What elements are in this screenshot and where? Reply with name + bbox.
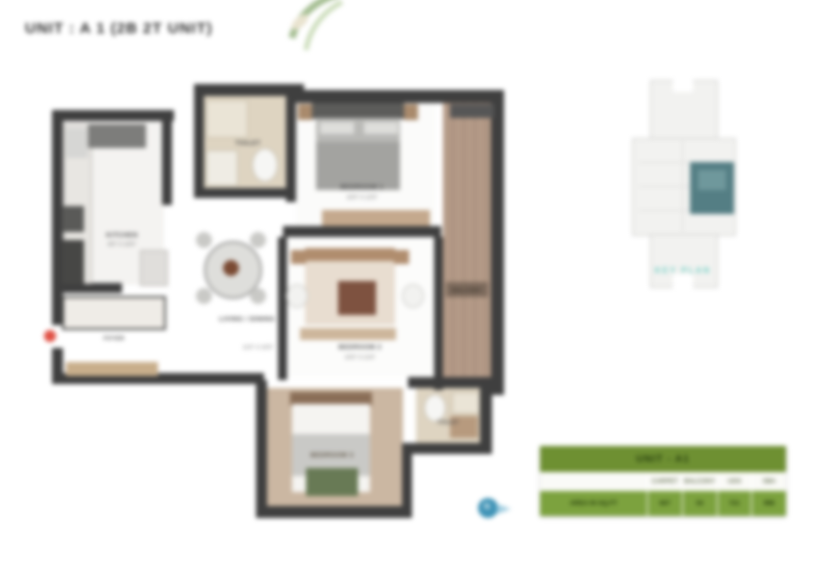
north-compass-icon: N bbox=[478, 496, 518, 522]
bedroom2-label: BEDROOM 2 bbox=[318, 344, 402, 351]
shower-area bbox=[206, 100, 248, 138]
area-table-column-row: CARPET BALCONY UDS SBA bbox=[540, 472, 786, 491]
bed1-pillow bbox=[320, 122, 354, 134]
bed2-side-table bbox=[394, 250, 409, 264]
key-plan bbox=[628, 78, 738, 290]
wall bbox=[286, 90, 296, 202]
wall bbox=[256, 380, 267, 518]
bedroom3-label: BEDROOM 3 bbox=[292, 452, 372, 459]
area-column: CARPET bbox=[647, 472, 682, 491]
bed1-blanket bbox=[316, 142, 400, 190]
kitchen-sink bbox=[66, 128, 88, 158]
foyer-label: FOYER bbox=[90, 336, 138, 342]
wall bbox=[480, 380, 492, 450]
bedroom2-chair bbox=[286, 284, 308, 308]
keyplan-notch bbox=[673, 78, 693, 92]
wall bbox=[283, 226, 441, 237]
page-title: UNIT : A 1 (2B 2T UNIT) bbox=[25, 20, 213, 37]
area-table-blank-cell bbox=[540, 472, 647, 491]
toilet1-label: TOILET bbox=[218, 140, 278, 147]
bed1-headboard bbox=[312, 103, 404, 119]
bed2-side-table bbox=[291, 250, 306, 264]
keyplan-notch bbox=[673, 274, 693, 288]
vanity-basin bbox=[206, 150, 238, 186]
wc-fixture-2 bbox=[424, 394, 446, 422]
balcony-floor bbox=[443, 102, 491, 390]
kitchen-label: KITCHEN bbox=[92, 232, 152, 239]
foyer-cabinet bbox=[62, 296, 166, 330]
wall bbox=[491, 90, 504, 395]
bed1-pillow bbox=[364, 122, 398, 134]
compass-letter: N bbox=[484, 502, 490, 511]
area-table-header: UNIT - A1 bbox=[540, 446, 786, 472]
wall bbox=[402, 443, 492, 454]
area-table: UNIT - A1 CARPET BALCONY UDS SBA AREA IN… bbox=[540, 446, 786, 516]
entry-mat bbox=[66, 362, 158, 376]
wall bbox=[162, 110, 172, 205]
bed2-rug bbox=[300, 328, 396, 340]
dining-chair bbox=[250, 288, 266, 304]
living-dining-label: LIVING / DINING bbox=[200, 316, 294, 323]
main-entry-marker bbox=[44, 330, 56, 342]
keyplan-line bbox=[682, 140, 683, 232]
wall bbox=[296, 90, 504, 103]
bed3-bench bbox=[306, 468, 358, 496]
toilet2-label: TOILET bbox=[420, 420, 476, 426]
area-value: 721 bbox=[717, 491, 752, 516]
bed2-runner bbox=[338, 281, 376, 315]
bedroom2-chair bbox=[402, 284, 424, 308]
area-column: UDS bbox=[717, 472, 752, 491]
area-table-value-row: AREA IN SQ.FT 667 54 721 998 bbox=[540, 491, 786, 516]
area-column: BALCONY bbox=[682, 472, 717, 491]
bed1-rug bbox=[322, 210, 430, 226]
kitchen-cabinet-dark bbox=[62, 206, 84, 232]
wall bbox=[194, 188, 296, 198]
area-value: 667 bbox=[647, 491, 682, 516]
wc-fixture bbox=[252, 148, 278, 182]
balcony-label: BALCONY bbox=[444, 288, 490, 294]
bedroom2-dims: 10'0" X 11'6" bbox=[318, 355, 402, 361]
kitchen-tall-unit bbox=[62, 240, 84, 284]
area-value: 54 bbox=[682, 491, 717, 516]
living-dining-dims: 11'6" X 16'0" bbox=[228, 345, 288, 351]
balcony-door-wall bbox=[450, 104, 494, 118]
compass-pointer bbox=[497, 504, 511, 514]
wall bbox=[278, 237, 287, 380]
area-column: SBA bbox=[751, 472, 786, 491]
wall bbox=[402, 443, 412, 518]
shower-area-2 bbox=[452, 392, 480, 414]
bedroom1-label: BEDROOM 1 bbox=[322, 184, 402, 191]
bed1-side-table bbox=[404, 104, 418, 120]
bed2-headboard bbox=[305, 248, 395, 262]
floorplan-sheet: UNIT : A 1 (2B 2T UNIT) bbox=[0, 0, 823, 584]
area-value: 998 bbox=[751, 491, 786, 516]
dining-table-center bbox=[223, 260, 239, 276]
wall bbox=[434, 237, 443, 390]
kitchen-hob-counter bbox=[88, 124, 146, 148]
wall bbox=[52, 110, 174, 121]
wall bbox=[256, 506, 412, 518]
bedroom1-dims: 10'0" X 12'0" bbox=[322, 195, 402, 201]
dining-chair bbox=[250, 232, 266, 248]
blurred-content: UNIT : A 1 (2B 2T UNIT) bbox=[0, 0, 823, 584]
wall bbox=[194, 84, 204, 196]
bed1-side-table bbox=[298, 104, 312, 120]
kitchen-dims: 8'0" X 10'0" bbox=[92, 242, 152, 248]
area-row-label: AREA IN SQ.FT bbox=[540, 491, 647, 516]
dining-chair bbox=[196, 288, 212, 304]
wall bbox=[52, 283, 122, 293]
leaf-decoration-icon bbox=[258, 0, 344, 64]
refrigerator bbox=[140, 250, 168, 286]
keyplan-caption: KEY PLAN bbox=[628, 266, 738, 275]
keyplan-unit-inner bbox=[698, 170, 726, 190]
dining-chair bbox=[196, 232, 212, 248]
